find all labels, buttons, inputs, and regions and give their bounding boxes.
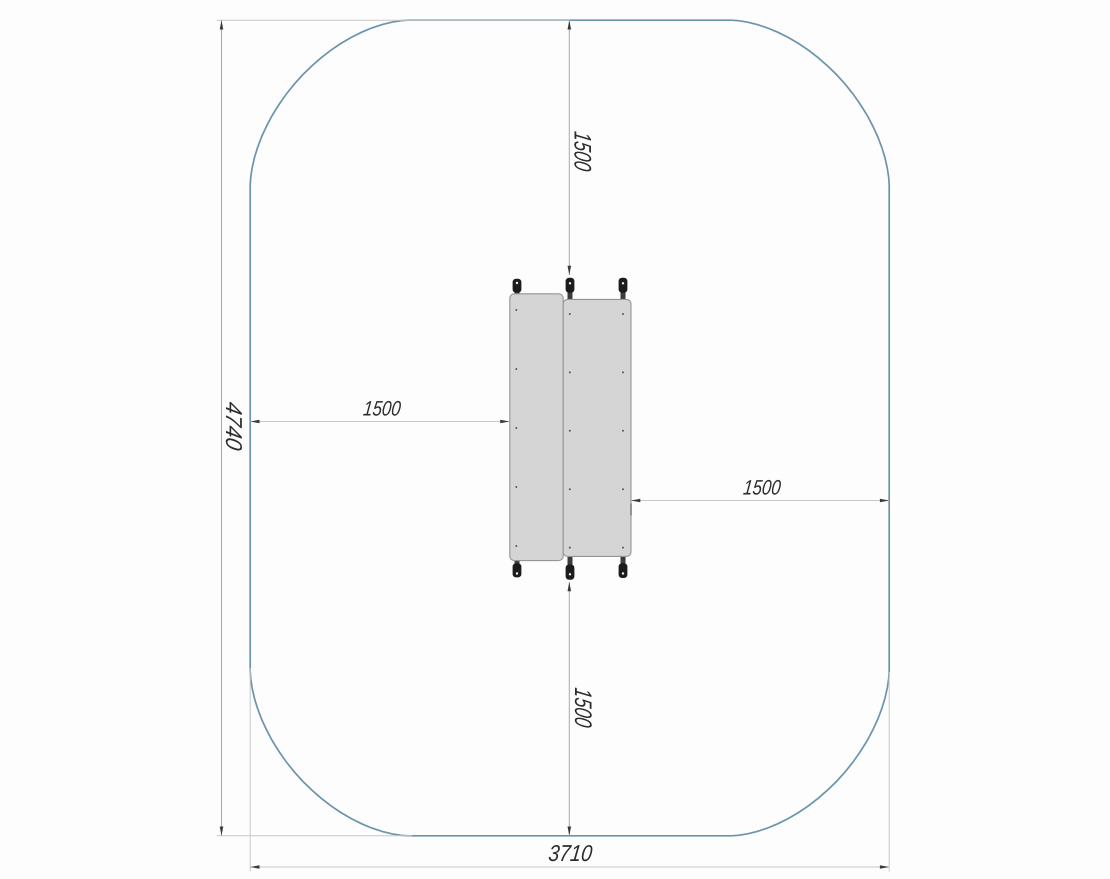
svg-text:1500: 1500: [742, 477, 782, 500]
svg-text:1500: 1500: [570, 686, 596, 729]
svg-text:4740: 4740: [221, 400, 247, 453]
svg-text:1500: 1500: [362, 398, 402, 421]
svg-text:3710: 3710: [547, 840, 594, 866]
svg-text:1500: 1500: [569, 130, 595, 173]
